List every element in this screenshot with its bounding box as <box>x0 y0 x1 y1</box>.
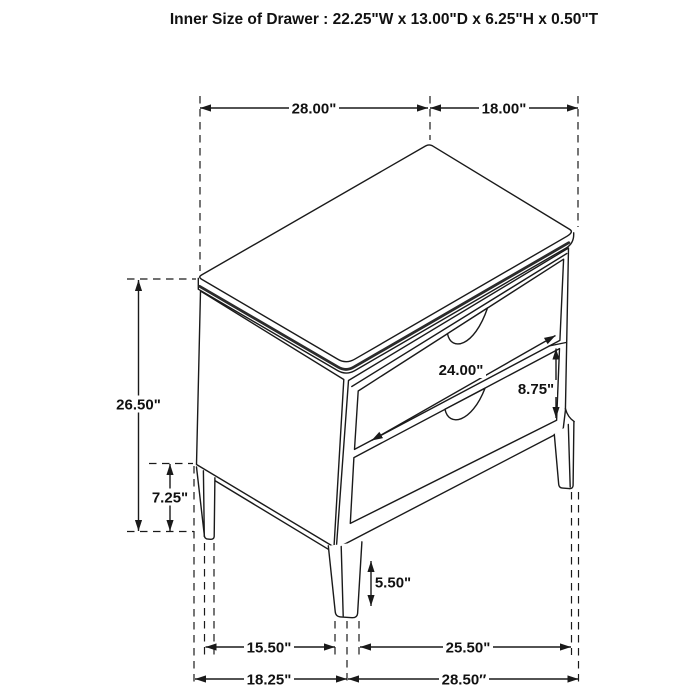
front-leg <box>328 542 362 618</box>
dim-legs-side-span: 15.50" <box>206 639 336 657</box>
dim-label-drawer-height: 8.75" <box>518 381 554 398</box>
dim-label-legs-front-span: 25.50" <box>446 639 491 656</box>
dim-label-top-width: 28.00" <box>292 100 337 117</box>
dim-label-drawer-width: 24.00" <box>439 362 484 379</box>
dim-bottom-clearance: 7.25" <box>149 464 191 531</box>
dim-label-overall-height: 26.50" <box>116 396 161 413</box>
dim-label-base-side-width: 18.25" <box>247 671 292 688</box>
dim-legs-front-span: 25.50" <box>360 639 571 657</box>
dim-leg-height: 5.50" <box>371 561 414 606</box>
nightstand-dimension-diagram: 28.00" 18.00" 26.50" 7.25" 24.00" <box>0 0 700 700</box>
dim-label-leg-height: 5.50" <box>375 574 411 591</box>
dim-top-depth: 18.00" <box>430 100 578 118</box>
dim-label-bottom-clearance: 7.25" <box>152 489 188 506</box>
back-left-leg <box>197 467 215 539</box>
dim-base-front-width: 28.50″ <box>348 671 579 689</box>
dim-label-legs-side-span: 15.50" <box>247 639 292 656</box>
back-left-leg-edge <box>203 471 204 537</box>
dim-label-top-depth: 18.00" <box>482 100 527 117</box>
dim-base-side-width: 18.25" <box>195 671 347 689</box>
dimension-diagram-page: Inner Size of Drawer : 22.25"W x 13.00"D… <box>0 0 700 700</box>
right-leg-shoulder <box>565 409 574 422</box>
dim-label-base-front-width: 28.50″ <box>442 671 487 688</box>
dim-top-width: 28.00" <box>200 100 428 118</box>
